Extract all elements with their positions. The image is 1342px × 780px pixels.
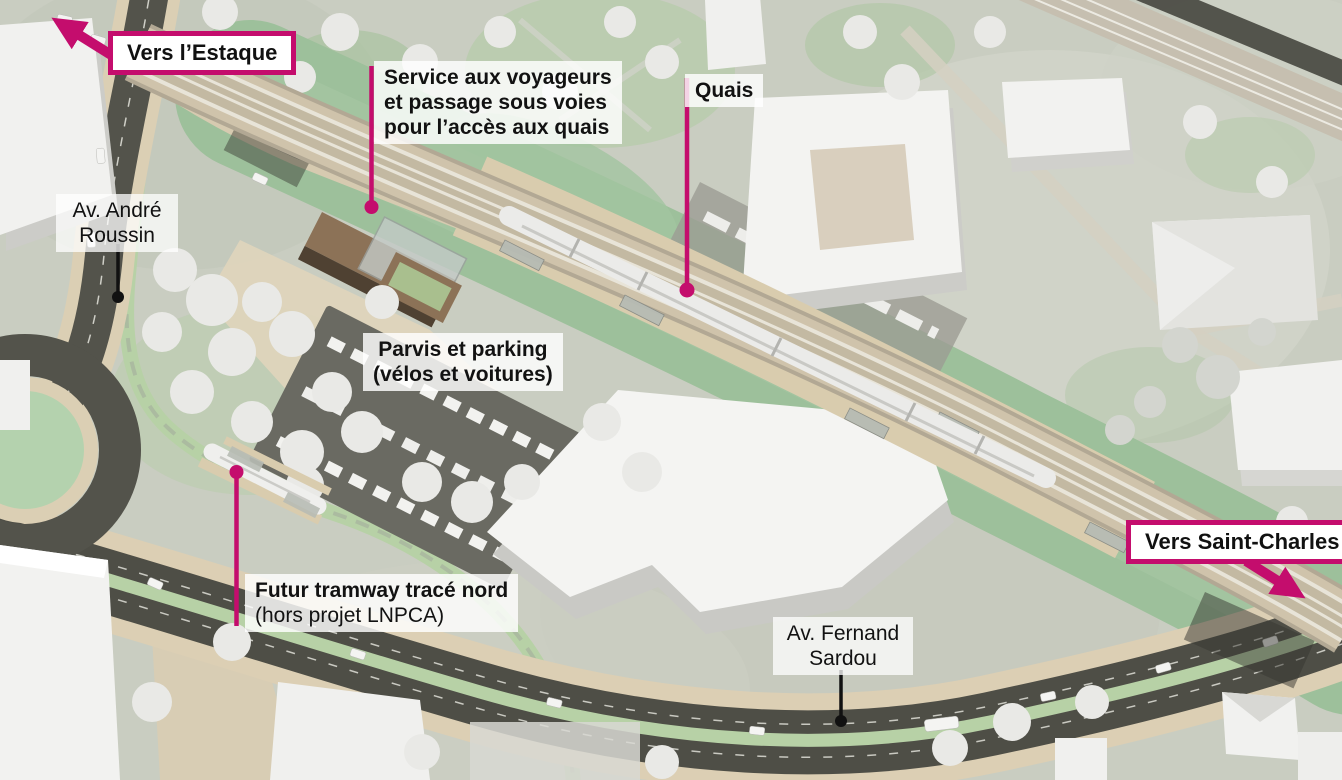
callout-line: Av. André [66, 198, 168, 223]
aerial-map: Vers l’Estaque Service aux voyageurs et … [0, 0, 1342, 780]
callout-line: Service aux voyageurs [384, 65, 612, 90]
callout-quais: Quais [685, 74, 763, 107]
callout-line: Sardou [783, 646, 903, 671]
callout-futur-tramway: Futur tramway tracé nord (hors projet LN… [245, 574, 518, 632]
direction-label-vers-saint-charles: Vers Saint-Charles [1126, 520, 1342, 564]
callout-line: Futur tramway tracé nord [255, 578, 508, 603]
callout-line: (vélos et voitures) [373, 362, 553, 387]
aerial-render [0, 0, 1342, 780]
callout-line: Parvis et parking [373, 337, 553, 362]
callout-line: Roussin [66, 223, 168, 248]
callout-line: (hors projet LNPCA) [255, 603, 508, 628]
direction-label-vers-estaque: Vers l’Estaque [108, 31, 296, 75]
callout-service-voyageurs: Service aux voyageurs et passage sous vo… [374, 61, 622, 144]
callout-av-fernand-sardou: Av. Fernand Sardou [773, 617, 913, 675]
callout-av-andre-roussin: Av. André Roussin [56, 194, 178, 252]
callout-line: pour l’accès aux quais [384, 115, 612, 140]
callout-line: Av. Fernand [783, 621, 903, 646]
callout-parvis-parking: Parvis et parking (vélos et voitures) [363, 333, 563, 391]
callout-line: et passage sous voies [384, 90, 612, 115]
